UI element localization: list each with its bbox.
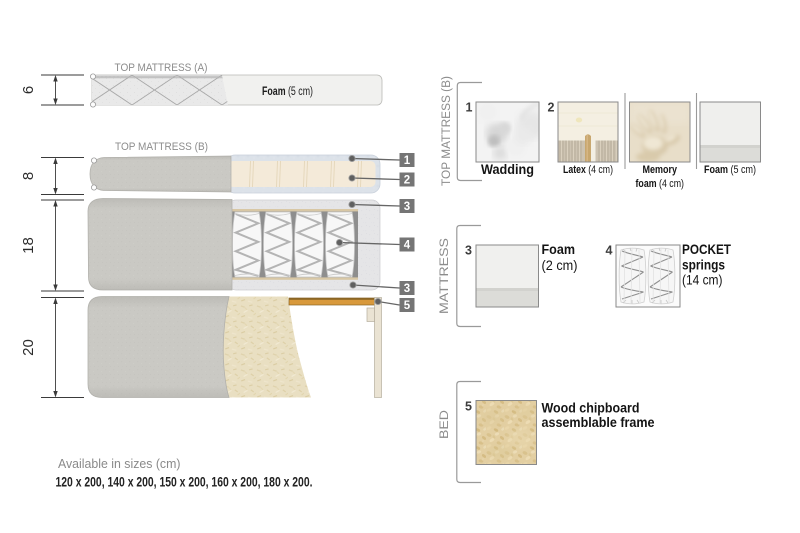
svg-text:2: 2 bbox=[548, 101, 555, 115]
svg-text:POCKET: POCKET bbox=[682, 242, 732, 257]
svg-text:Foam (5 cm): Foam (5 cm) bbox=[704, 164, 756, 176]
svg-text:4: 4 bbox=[404, 240, 411, 252]
svg-text:18: 18 bbox=[20, 237, 37, 254]
svg-text:8: 8 bbox=[20, 172, 37, 180]
svg-text:Wood chipboard: Wood chipboard bbox=[542, 401, 640, 416]
svg-text:6: 6 bbox=[20, 86, 37, 94]
svg-text:20: 20 bbox=[20, 339, 37, 356]
svg-text:3: 3 bbox=[404, 283, 410, 295]
svg-text:Available in sizes (cm): Available in sizes (cm) bbox=[58, 456, 181, 471]
svg-text:1: 1 bbox=[466, 101, 473, 115]
svg-text:Wadding: Wadding bbox=[481, 162, 534, 177]
svg-text:4: 4 bbox=[606, 244, 613, 258]
svg-text:TOP MATTRESS (B): TOP MATTRESS (B) bbox=[115, 141, 208, 153]
svg-text:TOP MATTRESS (B): TOP MATTRESS (B) bbox=[441, 76, 453, 186]
svg-text:Foam: Foam bbox=[542, 242, 576, 257]
svg-text:3: 3 bbox=[465, 244, 472, 258]
svg-text:BED: BED bbox=[439, 410, 451, 439]
svg-text:Memory: Memory bbox=[643, 164, 678, 176]
svg-text:Foam (5 cm): Foam (5 cm) bbox=[262, 86, 313, 98]
svg-text:TOP MATTRESS (A): TOP MATTRESS (A) bbox=[115, 62, 208, 74]
svg-text:springs: springs bbox=[682, 258, 725, 273]
svg-text:assemblable frame: assemblable frame bbox=[542, 415, 655, 430]
svg-text:120 x 200, 140 x 200, 150 x 20: 120 x 200, 140 x 200, 150 x 200, 160 x 2… bbox=[56, 475, 313, 490]
svg-text:3: 3 bbox=[404, 201, 410, 213]
svg-text:Latex (4 cm): Latex (4 cm) bbox=[563, 164, 613, 176]
svg-text:(2 cm): (2 cm) bbox=[542, 258, 578, 273]
svg-text:2: 2 bbox=[404, 175, 410, 187]
svg-text:1: 1 bbox=[404, 155, 411, 167]
svg-text:5: 5 bbox=[404, 300, 411, 312]
svg-text:MATTRESS: MATTRESS bbox=[439, 238, 451, 314]
svg-text:5: 5 bbox=[465, 400, 472, 414]
svg-text:foam (4 cm): foam (4 cm) bbox=[636, 178, 685, 190]
svg-text:(14 cm): (14 cm) bbox=[682, 273, 723, 288]
